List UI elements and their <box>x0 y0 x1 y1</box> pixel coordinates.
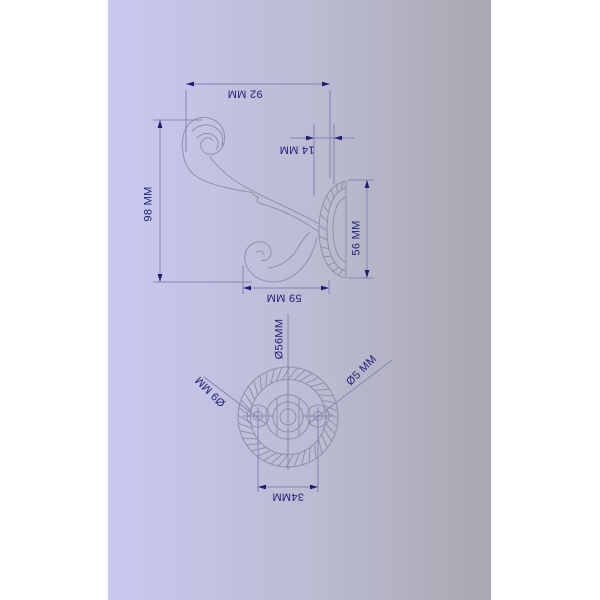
dim-14mm <box>290 124 354 196</box>
dim-label-backplate-diameter: Ø56MM <box>275 319 286 360</box>
dim-label-projection: 59 MM <box>266 292 301 303</box>
dim-label-plate-depth: 14 MM <box>279 144 314 155</box>
leader-screw-hole <box>308 360 392 424</box>
product-dimension-image: 92 MM 14 MM 98 MM 56 MM 59 MM Ø56MM Ø9 M… <box>0 0 600 600</box>
backplate-side-view <box>319 181 346 278</box>
dim-label-hole-spacing: 34MM <box>272 491 304 502</box>
hook-outline <box>182 117 319 281</box>
side-view <box>153 82 374 294</box>
dim-label-plate-diameter: 56 MM <box>352 220 363 255</box>
dim-label-width: 92 MM <box>227 88 262 99</box>
dim-98mm <box>153 120 252 282</box>
dim-label-height: 98 MM <box>144 186 155 221</box>
backplate-rope-edge-ticks <box>319 181 343 276</box>
front-view <box>204 314 392 492</box>
